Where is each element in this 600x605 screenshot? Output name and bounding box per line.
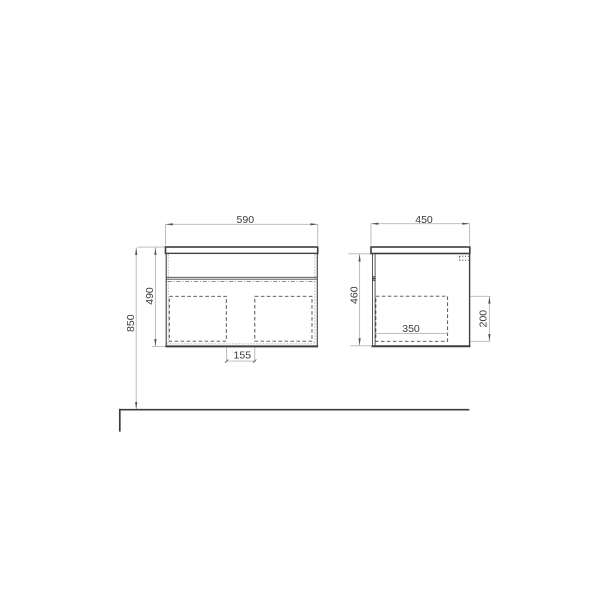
svg-text:590: 590 [237,214,255,226]
svg-text:450: 450 [415,214,433,226]
svg-text:200: 200 [477,310,489,328]
svg-text:350: 350 [402,323,420,335]
svg-text:490: 490 [144,287,156,305]
svg-text:155: 155 [234,350,252,362]
svg-text:460: 460 [348,286,360,304]
svg-text:850: 850 [125,314,137,332]
